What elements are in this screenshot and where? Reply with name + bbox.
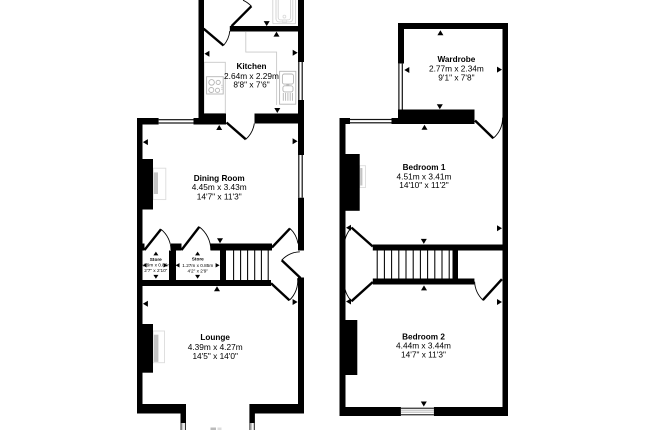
svg-text:Store: Store [150,257,162,262]
svg-text:Kitchen: Kitchen [236,62,266,71]
svg-text:14'7" x 11'3": 14'7" x 11'3" [401,350,446,360]
svg-text:Store: Store [192,257,204,262]
svg-text:14'7" x 11'3": 14'7" x 11'3" [197,191,242,201]
svg-text:9'1" x 7'8": 9'1" x 7'8" [438,72,474,82]
svg-text:Lounge: Lounge [200,333,230,342]
svg-text:4'2" x 2'9": 4'2" x 2'9" [188,269,209,274]
svg-text:1.27m x 0.85m: 1.27m x 0.85m [182,263,213,268]
svg-text:2'7" x 2'10": 2'7" x 2'10" [144,268,167,273]
svg-text:8'8" x 7'6": 8'8" x 7'6" [233,79,269,89]
svg-text:14'10" x 11'2": 14'10" x 11'2" [399,180,449,190]
svg-text:14'5" x 14'0": 14'5" x 14'0" [192,351,238,361]
